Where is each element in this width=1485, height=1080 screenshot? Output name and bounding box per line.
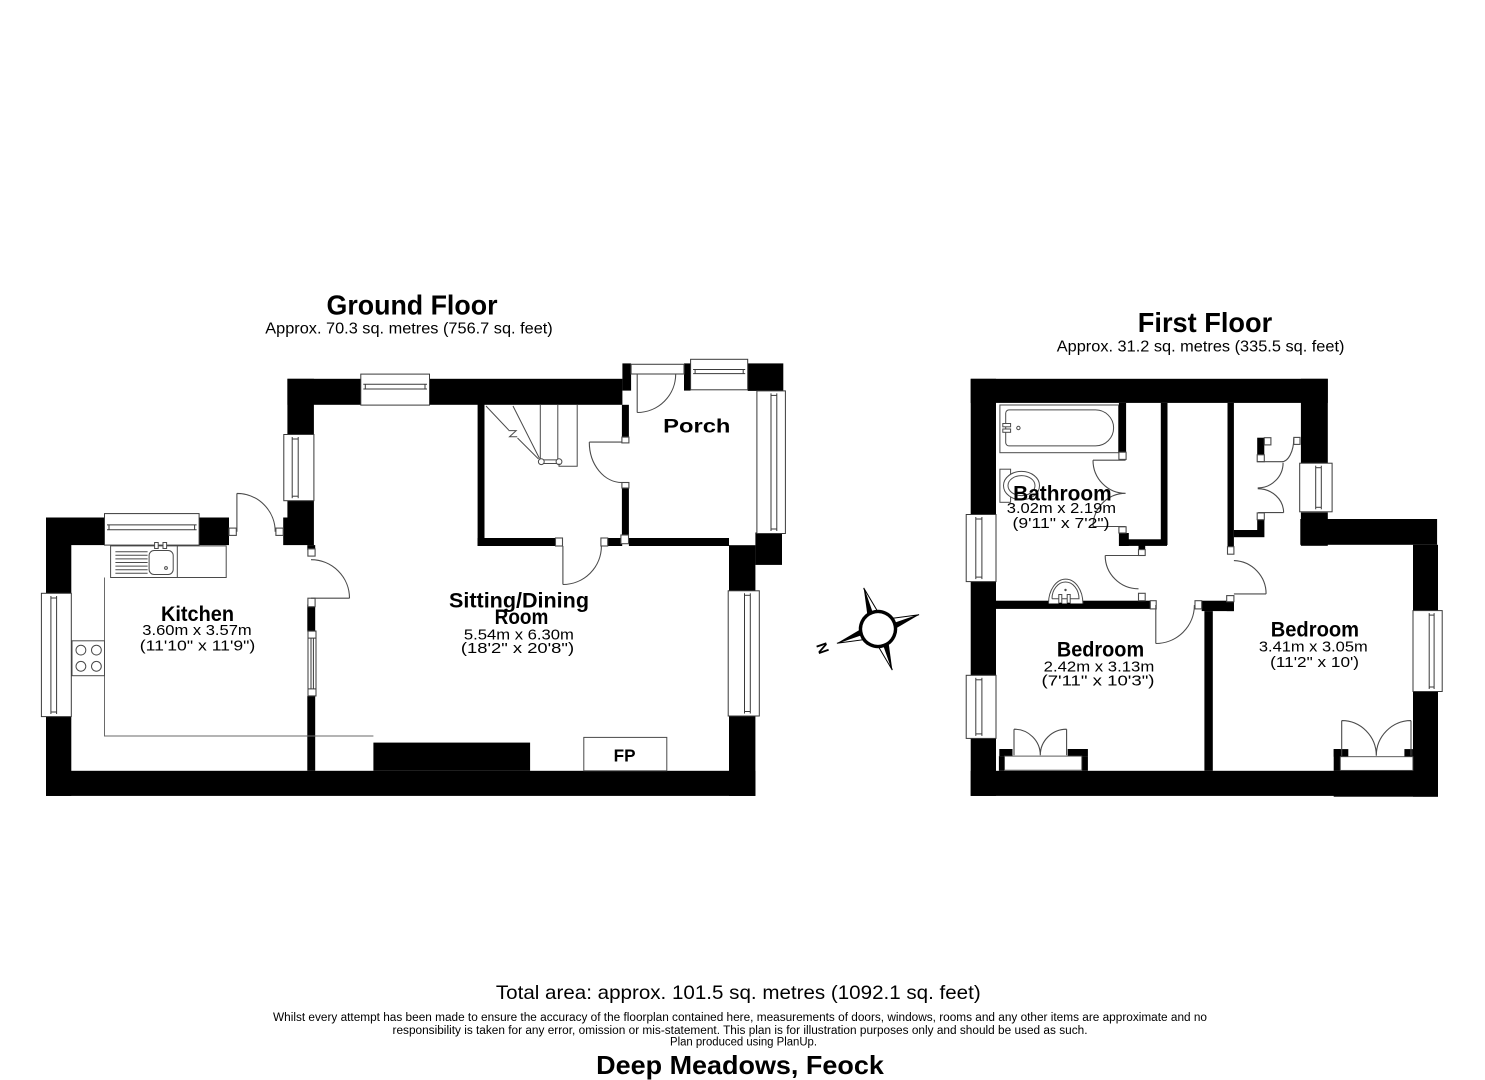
svg-text:(18'2" x 20'8"): (18'2" x 20'8"): [461, 640, 574, 657]
svg-text:Porch: Porch: [663, 416, 730, 438]
svg-text:3.41m x 3.05m: 3.41m x 3.05m: [1259, 638, 1368, 655]
svg-text:Plan produced using PlanUp.: Plan produced using PlanUp.: [670, 1037, 817, 1049]
svg-text:responsibility is taken for an: responsibility is taken for any error, o…: [393, 1025, 1088, 1037]
svg-text:(11'10" x 11'9"): (11'10" x 11'9"): [140, 638, 256, 655]
svg-text:Ground Floor: Ground Floor: [327, 290, 498, 321]
svg-text:Approx. 31.2 sq. metres (335.5: Approx. 31.2 sq. metres (335.5 sq. feet): [1057, 339, 1345, 356]
svg-text:(7'11" x 10'3"): (7'11" x 10'3"): [1042, 672, 1155, 689]
svg-text:Whilst every attempt has been: Whilst every attempt has been made to en…: [273, 1012, 1207, 1024]
svg-text:(11'2" x 10'): (11'2" x 10'): [1270, 654, 1359, 671]
svg-text:Deep Meadows, Feock: Deep Meadows, Feock: [596, 1050, 884, 1080]
svg-text:3.60m x 3.57m: 3.60m x 3.57m: [142, 622, 251, 639]
svg-text:First Floor: First Floor: [1138, 307, 1272, 338]
svg-text:(9'11" x 7'2"): (9'11" x 7'2"): [1013, 515, 1110, 532]
svg-text:Approx. 70.3 sq. metres (756.7: Approx. 70.3 sq. metres (756.7 sq. feet): [265, 321, 553, 338]
svg-text:FP: FP: [614, 745, 636, 765]
svg-text:Total area: approx. 101.5 sq.: Total area: approx. 101.5 sq. metres (10…: [496, 982, 981, 1004]
